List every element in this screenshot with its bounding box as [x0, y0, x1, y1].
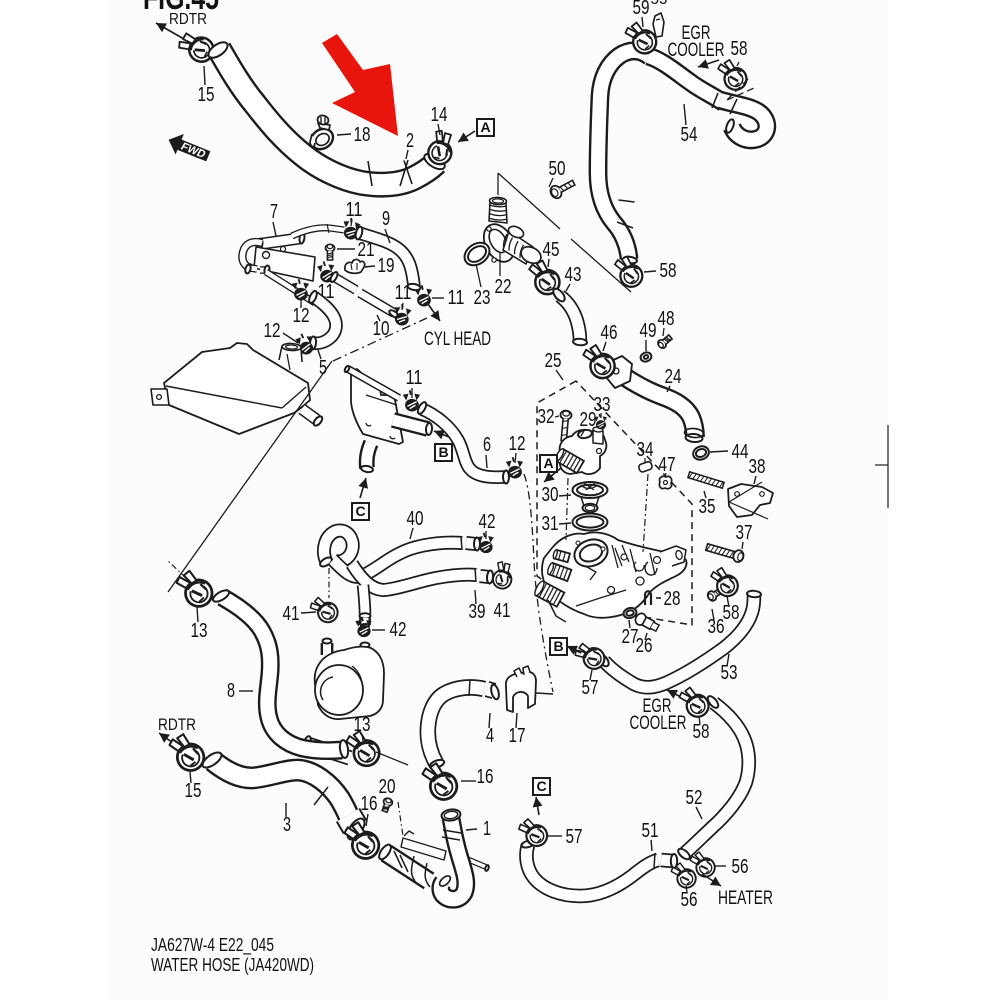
- svg-text:3: 3: [283, 814, 291, 836]
- svg-text:56: 56: [732, 856, 749, 878]
- svg-text:47: 47: [659, 454, 676, 476]
- svg-text:HEATER: HEATER: [718, 888, 773, 909]
- svg-text:19: 19: [378, 255, 395, 277]
- svg-text:CYL HEAD: CYL HEAD: [424, 329, 491, 350]
- svg-text:31: 31: [542, 513, 559, 535]
- svg-text:4: 4: [486, 725, 494, 747]
- svg-text:7: 7: [270, 201, 278, 223]
- svg-text:57: 57: [582, 677, 599, 699]
- svg-text:11: 11: [346, 199, 363, 221]
- svg-text:12: 12: [509, 433, 526, 455]
- svg-text:8: 8: [227, 680, 235, 702]
- svg-text:32: 32: [538, 406, 555, 428]
- svg-text:34: 34: [637, 439, 654, 461]
- svg-text:2: 2: [406, 130, 414, 152]
- svg-text:52: 52: [686, 787, 703, 809]
- svg-text:C: C: [536, 778, 546, 794]
- svg-text:11: 11: [395, 282, 412, 304]
- svg-text:RDTR: RDTR: [169, 11, 207, 28]
- svg-text:12: 12: [264, 320, 281, 342]
- svg-text:44: 44: [732, 441, 749, 463]
- svg-text:41: 41: [494, 600, 511, 622]
- svg-text:1: 1: [483, 818, 491, 840]
- svg-text:43: 43: [565, 264, 582, 286]
- svg-text:41: 41: [283, 603, 300, 625]
- svg-text:WATER HOSE (JA420WD): WATER HOSE (JA420WD): [151, 955, 314, 975]
- svg-text:37: 37: [736, 522, 753, 544]
- svg-text:50: 50: [549, 158, 566, 180]
- svg-text:13: 13: [354, 714, 371, 736]
- svg-text:39: 39: [469, 601, 486, 623]
- svg-text:5: 5: [319, 357, 327, 379]
- svg-text:17: 17: [509, 725, 526, 747]
- svg-text:38: 38: [749, 456, 766, 478]
- svg-text:25: 25: [545, 350, 562, 372]
- svg-text:40: 40: [407, 508, 424, 530]
- svg-text:55: 55: [651, 0, 668, 8]
- svg-text:13: 13: [191, 620, 208, 642]
- svg-text:6: 6: [483, 434, 491, 456]
- svg-text:JA627W-4 E22_045: JA627W-4 E22_045: [151, 935, 274, 956]
- svg-text:15: 15: [198, 84, 215, 106]
- svg-text:51: 51: [642, 820, 659, 842]
- svg-text:58: 58: [660, 260, 677, 282]
- svg-text:46: 46: [601, 322, 618, 344]
- svg-text:16: 16: [477, 766, 494, 788]
- svg-text:33: 33: [594, 394, 611, 416]
- svg-text:21: 21: [358, 239, 375, 261]
- svg-text:A: A: [543, 455, 553, 471]
- svg-text:9: 9: [382, 208, 390, 230]
- svg-text:COOLER: COOLER: [630, 713, 687, 734]
- svg-text:58: 58: [693, 721, 710, 743]
- svg-text:18: 18: [354, 124, 371, 146]
- svg-text:COOLER: COOLER: [668, 40, 725, 61]
- svg-text:15: 15: [185, 780, 202, 802]
- svg-text:28: 28: [664, 588, 681, 610]
- svg-text:56: 56: [681, 889, 698, 911]
- svg-text:45: 45: [543, 239, 560, 261]
- svg-text:12: 12: [293, 305, 310, 327]
- svg-text:23: 23: [474, 287, 491, 309]
- svg-text:30: 30: [542, 484, 559, 506]
- svg-text:16: 16: [361, 793, 378, 815]
- svg-text:58: 58: [731, 38, 748, 60]
- svg-text:20: 20: [379, 776, 396, 798]
- svg-text:B: B: [553, 638, 563, 654]
- svg-text:22: 22: [495, 276, 512, 298]
- svg-text:11: 11: [448, 287, 465, 309]
- svg-text:24: 24: [665, 366, 682, 388]
- svg-text:A: A: [480, 119, 490, 135]
- svg-text:53: 53: [721, 662, 738, 684]
- svg-text:C: C: [355, 503, 365, 519]
- svg-text:54: 54: [681, 124, 698, 146]
- svg-text:RDTR: RDTR: [158, 715, 196, 734]
- svg-text:42: 42: [390, 619, 407, 641]
- svg-text:57: 57: [566, 826, 583, 848]
- svg-text:48: 48: [658, 308, 675, 330]
- svg-text:59: 59: [633, 0, 650, 19]
- svg-text:B: B: [438, 444, 448, 460]
- svg-text:42: 42: [479, 511, 496, 533]
- svg-text:26: 26: [636, 635, 653, 657]
- svg-text:14: 14: [431, 104, 448, 126]
- svg-text:49: 49: [640, 320, 657, 342]
- svg-text:58: 58: [723, 602, 740, 624]
- svg-text:11: 11: [406, 367, 423, 389]
- svg-text:35: 35: [699, 496, 716, 518]
